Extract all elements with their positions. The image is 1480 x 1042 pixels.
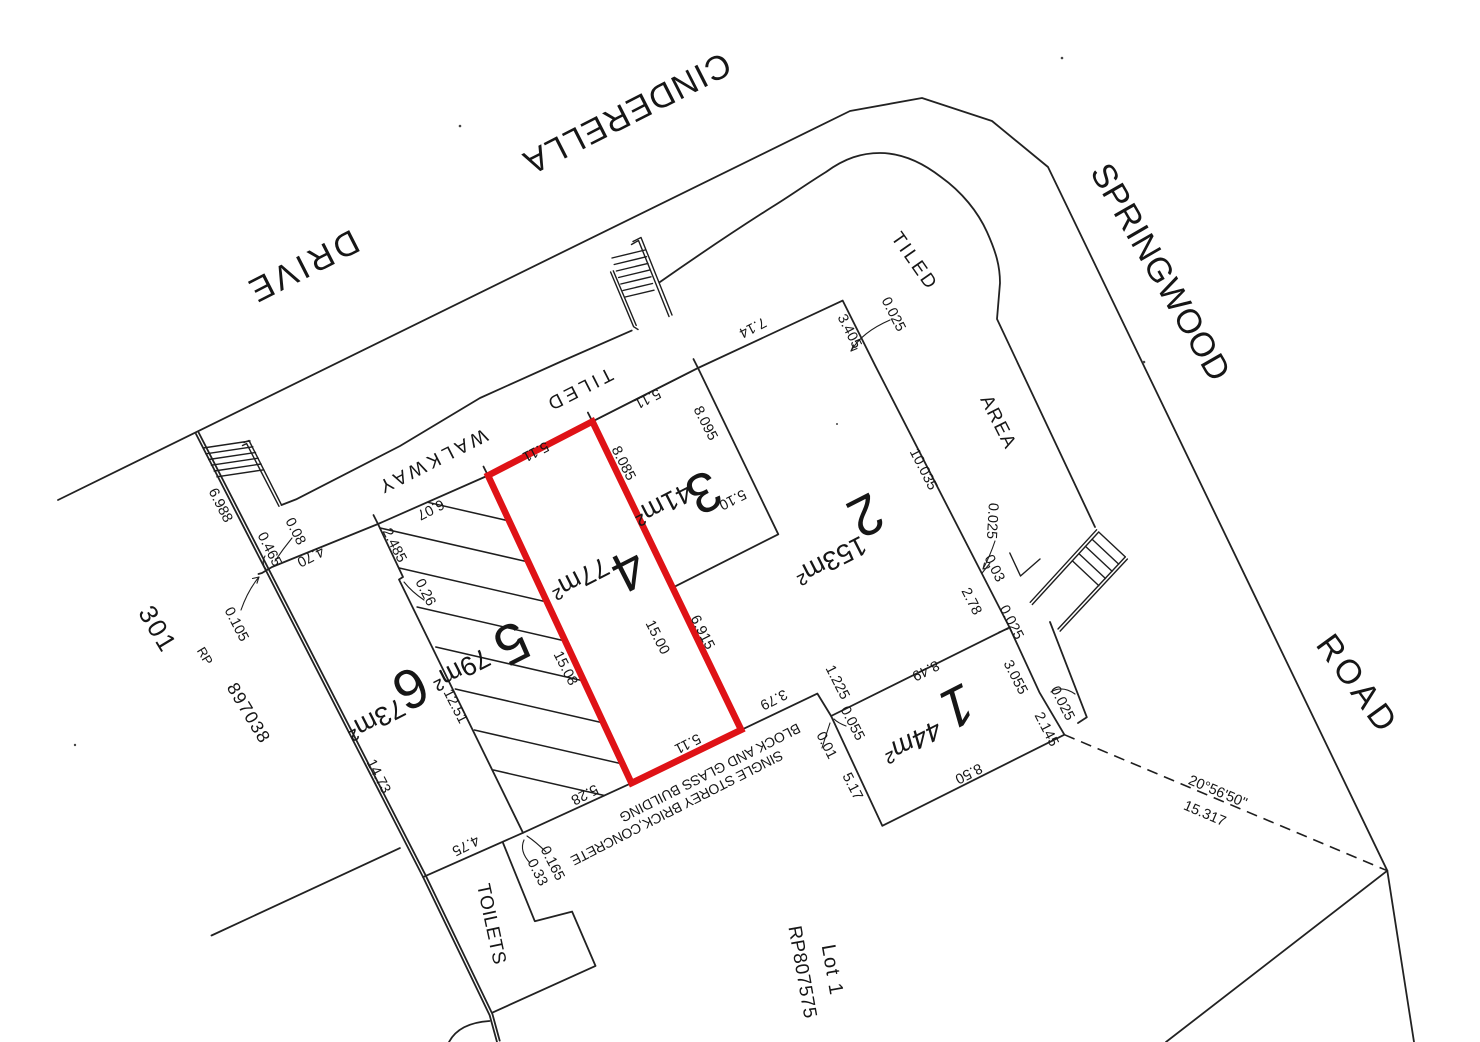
svg-text:0.025: 0.025 (983, 502, 1001, 539)
